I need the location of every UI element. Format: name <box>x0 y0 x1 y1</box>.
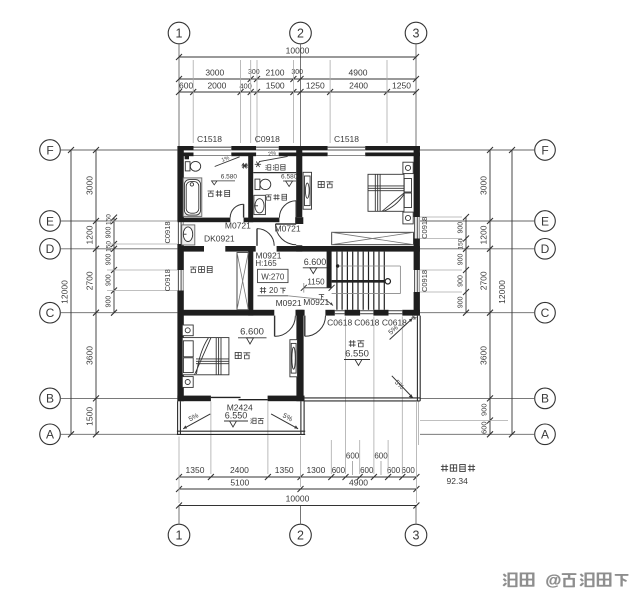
svg-text:3600: 3600 <box>479 346 489 365</box>
svg-text:600: 600 <box>374 452 388 461</box>
svg-text:4900: 4900 <box>349 478 368 488</box>
svg-text:D: D <box>46 242 55 256</box>
svg-text:3000: 3000 <box>479 176 489 195</box>
svg-text:C: C <box>541 306 550 320</box>
svg-text:600: 600 <box>402 466 416 475</box>
svg-text:300: 300 <box>248 69 260 76</box>
svg-text:1: 1 <box>176 27 183 41</box>
svg-text:900: 900 <box>458 275 465 287</box>
svg-text:900: 900 <box>480 403 489 416</box>
svg-text:2700: 2700 <box>479 271 489 290</box>
svg-text:900: 900 <box>458 296 465 308</box>
svg-text:600: 600 <box>387 466 401 475</box>
svg-text:600: 600 <box>332 466 346 475</box>
svg-text:2: 2 <box>297 529 304 543</box>
svg-text:F: F <box>46 143 53 157</box>
svg-text:C0618: C0618 <box>327 318 352 328</box>
svg-text:B: B <box>541 392 549 406</box>
svg-text:900: 900 <box>106 296 113 308</box>
svg-text:900: 900 <box>106 253 113 265</box>
svg-text:C0918: C0918 <box>163 221 172 243</box>
svg-text:1300: 1300 <box>306 465 325 475</box>
svg-text:150: 150 <box>458 238 465 249</box>
svg-text:150: 150 <box>106 241 113 252</box>
svg-text:3000: 3000 <box>85 176 95 195</box>
svg-text:C0918: C0918 <box>420 270 429 292</box>
svg-text:150: 150 <box>106 214 113 225</box>
svg-text:600: 600 <box>179 81 193 91</box>
svg-text:20: 20 <box>269 286 278 295</box>
svg-text:600: 600 <box>346 452 360 461</box>
svg-text:2700: 2700 <box>85 271 95 290</box>
svg-text:1500: 1500 <box>85 407 95 426</box>
svg-text:2100: 2100 <box>266 68 285 78</box>
svg-text:6.600: 6.600 <box>304 257 327 267</box>
svg-text:3000: 3000 <box>205 68 224 78</box>
svg-text:1250: 1250 <box>392 81 411 91</box>
svg-text:C: C <box>46 306 55 320</box>
svg-text:10000: 10000 <box>286 494 310 504</box>
svg-text:1350: 1350 <box>186 465 205 475</box>
svg-text:600: 600 <box>480 421 489 434</box>
svg-text:W:270: W:270 <box>261 273 285 282</box>
svg-text:2: 2 <box>297 27 304 41</box>
svg-text:1500: 1500 <box>266 81 285 91</box>
svg-text:900: 900 <box>106 274 113 286</box>
svg-text:H:165: H:165 <box>255 259 277 268</box>
svg-text:2400: 2400 <box>349 81 368 91</box>
svg-text:M0721: M0721 <box>225 220 251 230</box>
svg-text:900: 900 <box>106 227 113 239</box>
svg-text:4900: 4900 <box>349 68 368 78</box>
svg-text:6.550: 6.550 <box>345 349 369 360</box>
svg-text:6.580: 6.580 <box>281 174 298 181</box>
svg-text:1: 1 <box>176 529 183 543</box>
svg-text:A: A <box>46 428 54 442</box>
svg-text:B: B <box>46 392 54 406</box>
svg-text:M0721: M0721 <box>275 224 301 234</box>
svg-text:6.550: 6.550 <box>225 411 248 421</box>
svg-text:2400: 2400 <box>230 465 249 475</box>
svg-text:5100: 5100 <box>230 478 249 488</box>
svg-text:E: E <box>541 214 549 228</box>
svg-text:C0918: C0918 <box>420 217 429 239</box>
svg-text:1200: 1200 <box>479 225 489 244</box>
svg-text:C1518: C1518 <box>334 134 359 144</box>
svg-text:D: D <box>541 242 550 256</box>
svg-text:C0618: C0618 <box>354 318 379 328</box>
svg-text:600: 600 <box>360 466 374 475</box>
svg-text:3: 3 <box>413 529 420 543</box>
svg-text:6.600: 6.600 <box>240 327 264 338</box>
svg-text:92.34: 92.34 <box>447 476 469 486</box>
svg-text:M0921: M0921 <box>276 298 302 308</box>
svg-text:DK0921: DK0921 <box>204 234 235 244</box>
svg-text:C0918: C0918 <box>163 269 172 291</box>
svg-text:F: F <box>541 143 548 157</box>
svg-text:10000: 10000 <box>286 46 310 56</box>
svg-text:1250: 1250 <box>306 81 325 91</box>
svg-text:900: 900 <box>458 253 465 265</box>
svg-text:1350: 1350 <box>275 465 294 475</box>
svg-text:1150: 1150 <box>307 278 325 287</box>
svg-text:3: 3 <box>413 27 420 41</box>
svg-text:400: 400 <box>239 82 252 91</box>
svg-text:12000: 12000 <box>497 280 507 304</box>
svg-text:1200: 1200 <box>85 225 95 244</box>
svg-text:12000: 12000 <box>60 280 70 304</box>
svg-text:C1518: C1518 <box>197 134 222 144</box>
svg-text:6.580: 6.580 <box>221 174 238 181</box>
svg-text:@: @ <box>546 573 562 590</box>
svg-text:3600: 3600 <box>85 346 95 365</box>
svg-text:A: A <box>541 428 549 442</box>
svg-text:E: E <box>46 214 54 228</box>
svg-text:900: 900 <box>458 222 465 234</box>
svg-text:C0918: C0918 <box>255 134 280 144</box>
svg-text:2000: 2000 <box>207 81 226 91</box>
